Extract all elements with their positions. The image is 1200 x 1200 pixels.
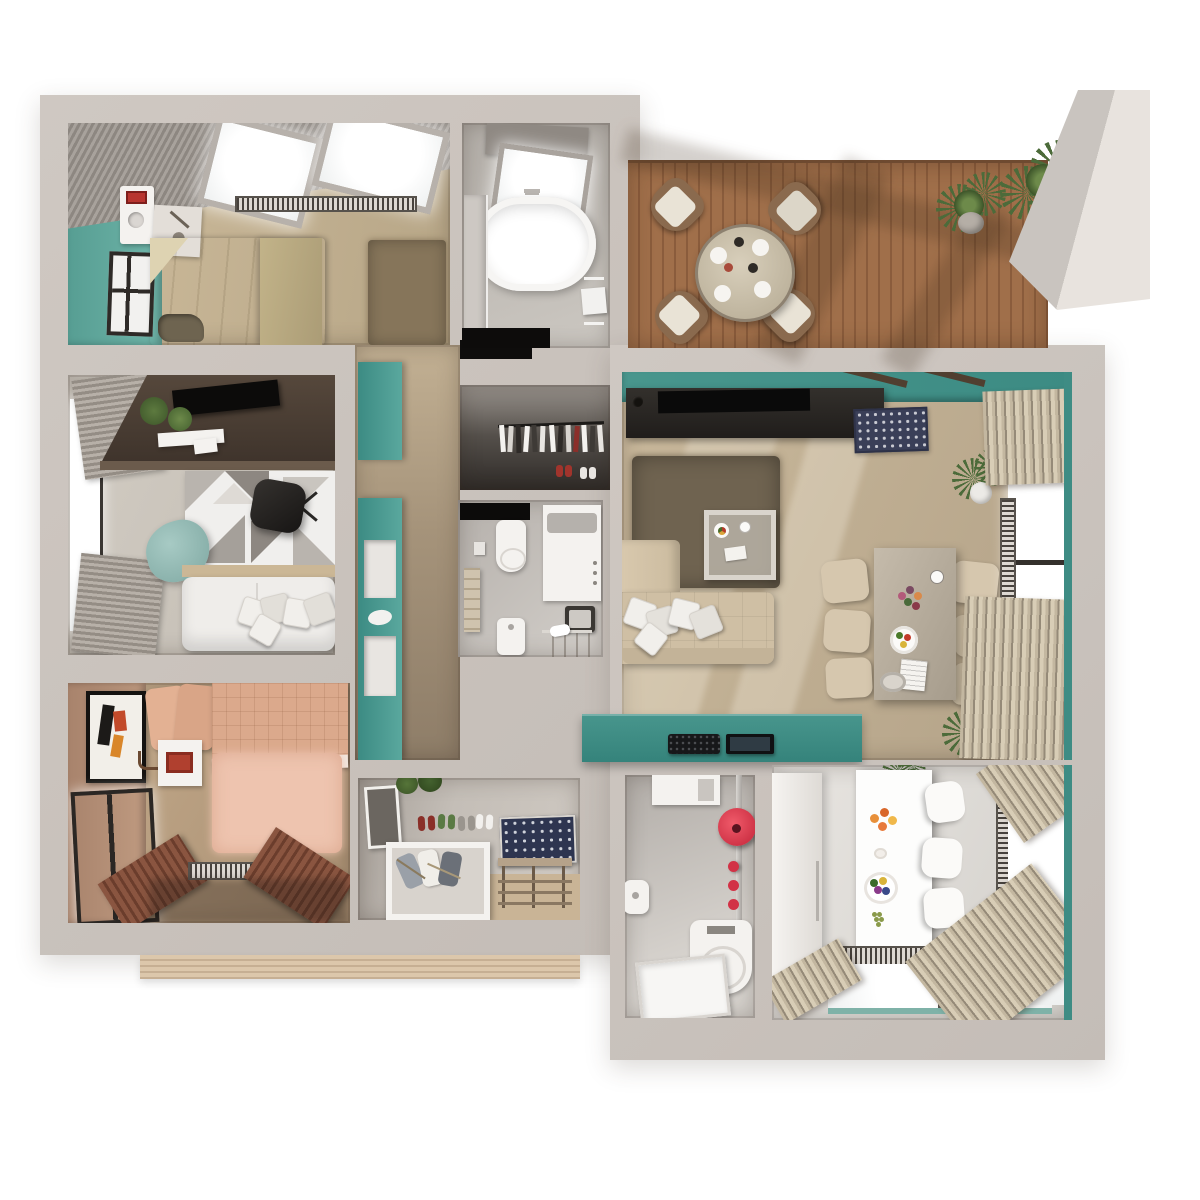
dining-table: [874, 548, 956, 700]
decor-branches: [170, 211, 190, 229]
chrome-pipe: [736, 775, 742, 925]
tv-console: [626, 388, 884, 438]
office-lounge-room: [68, 375, 335, 655]
floor-plan-render: [0, 0, 1200, 1200]
chair-seat: [248, 477, 308, 535]
window-mullion: [1008, 560, 1068, 565]
rug: [368, 240, 446, 345]
slippers-pair: [476, 814, 484, 829]
tray-towel: [569, 610, 591, 628]
towel-on-top: [547, 513, 597, 533]
island-counter: [856, 770, 932, 954]
toilet-hinge: [707, 926, 735, 934]
grapes: [872, 910, 888, 930]
cup: [748, 263, 758, 273]
wall-mirror-oval: [367, 608, 393, 626]
round-dining-table: [695, 224, 795, 322]
wardrobe-closet: [460, 385, 610, 490]
office-chair: [252, 481, 310, 535]
cup: [734, 237, 744, 247]
washing-machine: [543, 505, 601, 601]
coffee-table: [704, 510, 776, 580]
skylight-window: [196, 123, 323, 229]
shower-tray: [635, 953, 731, 1018]
food-dish: [724, 263, 733, 272]
wall-window: [107, 251, 156, 337]
kitchen-room: [772, 765, 1072, 1020]
plate: [714, 285, 731, 302]
teal-partition-wall: [358, 498, 402, 760]
tv: [658, 389, 810, 414]
cup: [739, 521, 751, 533]
shelf-counter: [464, 195, 488, 347]
plate: [752, 239, 769, 256]
door-mat: [462, 328, 550, 348]
red-wall-disc: [718, 808, 755, 846]
potted-plant: [936, 172, 1006, 238]
slippers-pair: [438, 814, 446, 829]
food-plate: [718, 527, 726, 535]
towel-ladder: [464, 568, 480, 632]
toilet: [496, 520, 526, 572]
intercom-unit: [120, 186, 154, 244]
sheet-corner: [150, 238, 188, 284]
wall-art: [86, 691, 146, 783]
flower-vase: [868, 808, 902, 838]
white-sofa: [182, 577, 335, 651]
bench: [542, 630, 592, 657]
laundry-bath-room: [458, 500, 603, 657]
sink: [625, 880, 649, 914]
desk-plant: [168, 407, 192, 431]
shoe-box: [386, 842, 490, 920]
towel-rack: [584, 277, 604, 325]
chair-cushion: [774, 188, 819, 233]
chair-cushion: [657, 293, 702, 338]
patterned-door-mat: [853, 407, 928, 454]
bed: [150, 238, 325, 345]
shoes-white: [580, 467, 587, 479]
slippers-pair: [458, 816, 466, 831]
dining-chair: [825, 657, 873, 699]
towel: [581, 287, 607, 315]
teal-partition-wall: [358, 362, 402, 460]
plate: [710, 247, 727, 264]
hanging-plant: [396, 778, 444, 796]
wood-edge-strip: [140, 955, 580, 979]
faucet-dot: [508, 624, 514, 630]
chair-cushion: [653, 184, 698, 229]
red-drawer: [166, 752, 193, 773]
shoes-on-bench: [549, 623, 571, 637]
duvet-pocket: [158, 314, 204, 342]
wall-niche: [364, 636, 396, 696]
remote-control: [668, 734, 720, 754]
bedroom-1-room: [68, 123, 450, 345]
teal-wall-edge: [1064, 372, 1072, 760]
teal-wall-edge: [1064, 765, 1072, 1020]
bathroom-1-room: [462, 123, 610, 348]
bar-stool: [921, 837, 964, 880]
teal-media-counter: [582, 714, 862, 762]
desk-front-edge: [100, 461, 335, 470]
knob: [593, 561, 597, 565]
slippers-pair: [418, 816, 426, 831]
toilet-seat-line: [500, 548, 526, 570]
nightstand: [158, 740, 202, 786]
wall-niche: [364, 540, 396, 598]
bar-stool: [923, 780, 966, 825]
curtains: [982, 388, 1072, 485]
cup: [930, 570, 944, 584]
console-shelf: [182, 565, 335, 577]
intercom-speaker: [128, 212, 144, 228]
bedroom-2-room: [68, 683, 350, 923]
red-dispenser: [728, 861, 739, 872]
laptop: [193, 438, 218, 455]
bench: [498, 858, 572, 912]
sofa: [622, 592, 774, 664]
floor-shadow: [150, 879, 346, 923]
plate: [754, 281, 771, 298]
shoes-red: [556, 465, 563, 477]
blanket-fold: [260, 238, 322, 345]
dining-chair: [820, 558, 870, 605]
flush-button: [474, 542, 485, 555]
bath-faucet: [524, 189, 540, 193]
tablet: [726, 734, 774, 754]
intercom-display: [126, 191, 147, 204]
hallway: [355, 345, 460, 760]
pedestal-sink: [497, 618, 525, 655]
magazine: [724, 546, 747, 562]
plant-pot: [958, 212, 984, 234]
flower-bouquet: [896, 584, 928, 614]
wall-cabinet: [652, 775, 720, 805]
bathtub: [474, 197, 596, 291]
small-plate: [874, 848, 887, 859]
desk-plant: [140, 397, 168, 425]
food-plate: [890, 626, 918, 654]
door-mat: [460, 503, 530, 520]
living-dining-room: [622, 372, 1072, 760]
hanging-clothes: [500, 425, 604, 459]
speaker: [632, 396, 643, 407]
entry-room: [358, 778, 580, 920]
radiator: [235, 196, 417, 212]
curtains: [959, 596, 1072, 760]
serving-tray: [880, 672, 906, 692]
fruit-bowl: [864, 872, 898, 904]
dining-chair: [823, 608, 872, 653]
toilet-room: [625, 775, 755, 1018]
